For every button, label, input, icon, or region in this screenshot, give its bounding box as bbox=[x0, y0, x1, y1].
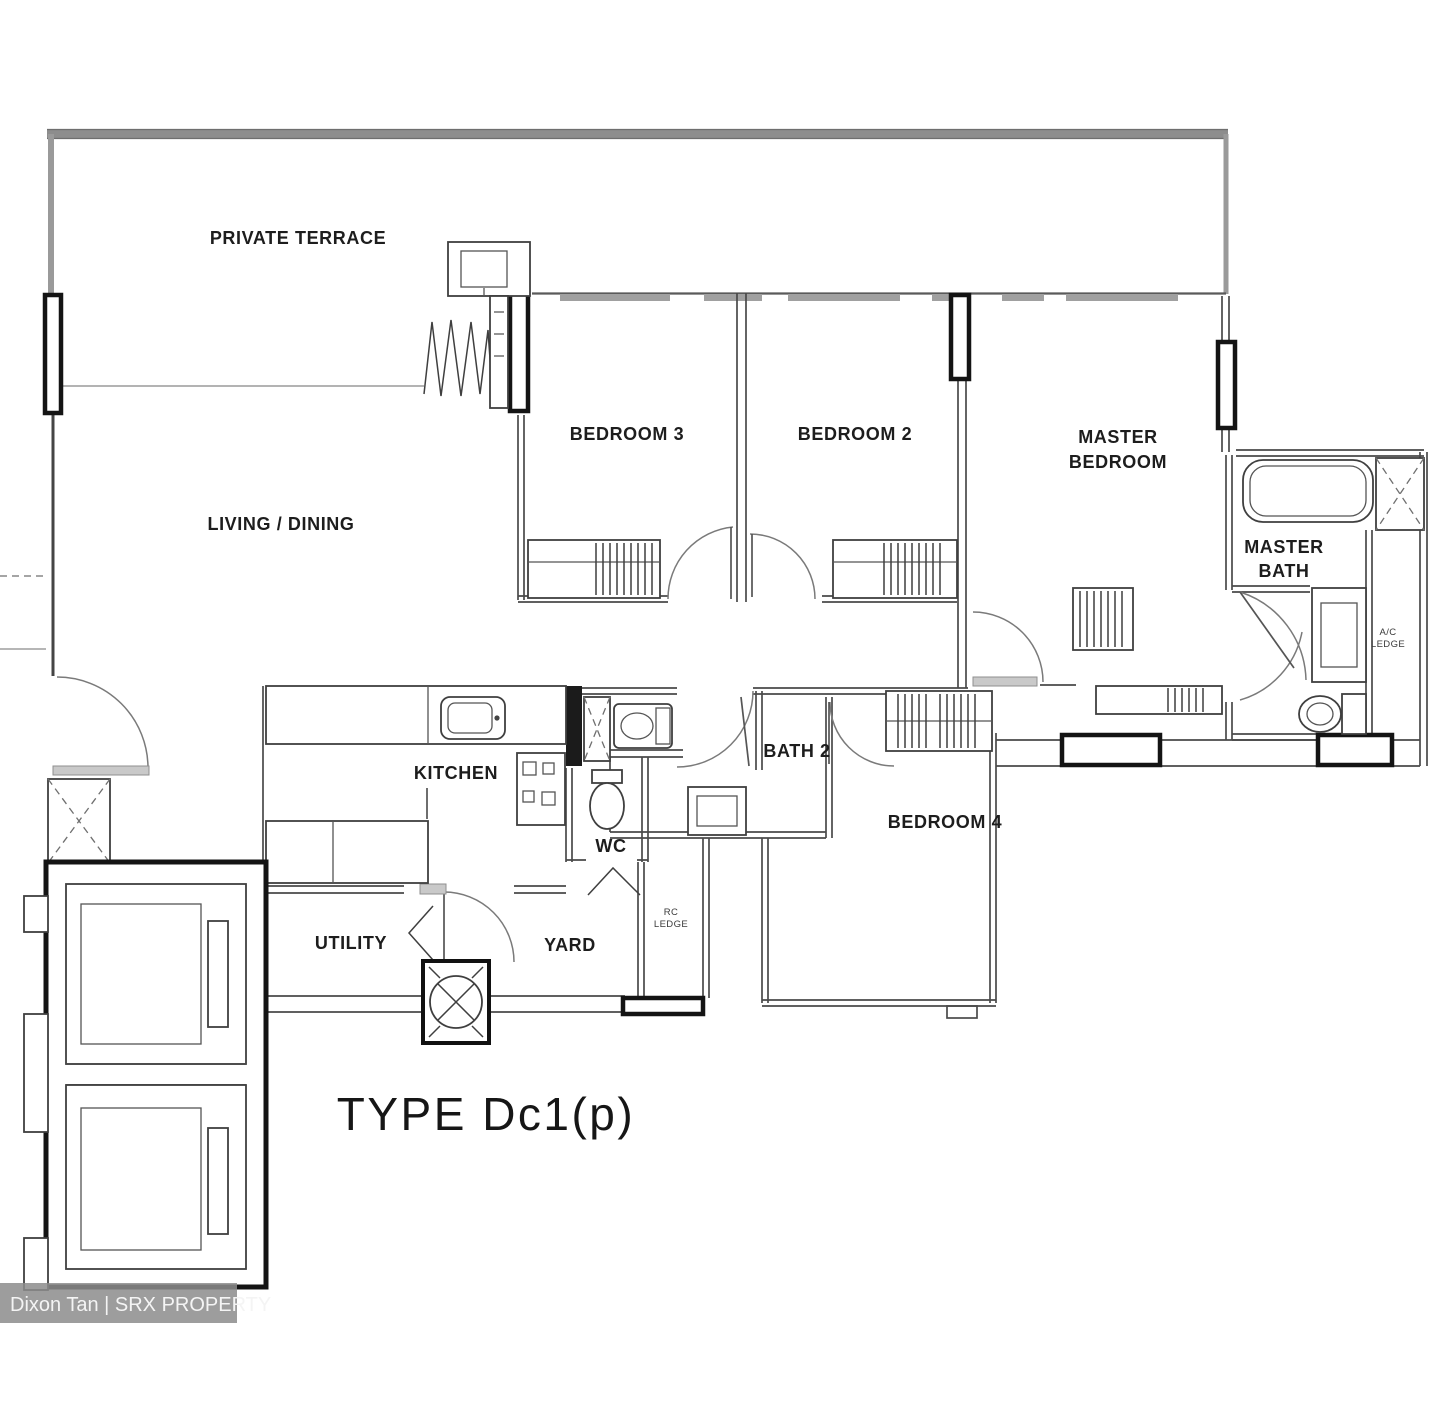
label-bath2: BATH 2 bbox=[763, 741, 830, 761]
entrance-door-arc bbox=[57, 677, 148, 768]
master-bath-toilet bbox=[1299, 696, 1341, 732]
bedroom3-door-arc bbox=[668, 527, 733, 599]
terrace-gate bbox=[424, 296, 508, 408]
watermark: Dixon Tan | SRX PROPERTY bbox=[0, 1283, 271, 1323]
lift-wall-tab-2 bbox=[24, 1014, 48, 1132]
lift-core bbox=[24, 862, 266, 1290]
floorplan-canvas: PRIVATE TERRACE LIVING / DINING BEDROOM … bbox=[0, 0, 1440, 1425]
yard-floor-trap bbox=[423, 961, 489, 1043]
label-yard: YARD bbox=[544, 935, 596, 955]
label-rc-ledge-1: RC bbox=[664, 907, 679, 918]
wc-cistern bbox=[592, 770, 622, 783]
master-bath-vanity bbox=[1312, 588, 1366, 682]
terrace-door-mullion bbox=[510, 293, 528, 411]
kitchen-fixtures bbox=[266, 686, 566, 883]
master-bath-cistern bbox=[1342, 694, 1366, 734]
wing-window-frame-2 bbox=[1318, 735, 1392, 765]
master-bath-shower-diagonal bbox=[1240, 592, 1294, 668]
bath2-toilet bbox=[614, 704, 672, 748]
master-bath-shower-arcs bbox=[1240, 592, 1306, 700]
wc-bifold-door-icon bbox=[588, 868, 640, 895]
bedroom3-wardrobe bbox=[528, 540, 660, 598]
yard-window-frame bbox=[623, 998, 703, 1014]
lift-wall-tab-1 bbox=[24, 896, 48, 932]
master-wardrobe-vertical bbox=[1073, 588, 1133, 650]
master-bedroom-door-leaf bbox=[973, 677, 1037, 686]
label-bedroom4: BEDROOM 4 bbox=[888, 812, 1002, 832]
label-master-bath-2: BATH bbox=[1258, 561, 1309, 581]
kitchen-sink-tap bbox=[494, 715, 499, 720]
bath2-vent-bar bbox=[566, 686, 582, 766]
bedroom4-wing-walls bbox=[762, 733, 1420, 1006]
kitchen-counter-top bbox=[266, 686, 566, 744]
wc-toilet bbox=[590, 783, 624, 829]
gate-spring-icon bbox=[424, 320, 492, 396]
bedroom4-door-arc bbox=[830, 702, 894, 766]
label-master-bedroom-2: BEDROOM bbox=[1069, 452, 1167, 472]
label-rc-ledge-2: LEDGE bbox=[654, 919, 688, 930]
master-wardrobe-vertical-hatch bbox=[1080, 591, 1122, 647]
bath-fixtures bbox=[590, 460, 1373, 835]
label-bedroom3: BEDROOM 3 bbox=[570, 424, 684, 444]
wing-window-frame-1 bbox=[1062, 735, 1160, 765]
master-bedroom-window-frame bbox=[1218, 342, 1235, 428]
label-utility: UTILITY bbox=[315, 933, 387, 953]
label-bedroom2: BEDROOM 2 bbox=[798, 424, 912, 444]
label-living-dining: LIVING / DINING bbox=[207, 514, 354, 534]
label-ac-ledge-2: LEDGE bbox=[1371, 639, 1405, 650]
bedroom2-window-frame bbox=[951, 295, 969, 379]
label-private-terrace: PRIVATE TERRACE bbox=[210, 228, 386, 248]
floorplan-svg: PRIVATE TERRACE LIVING / DINING BEDROOM … bbox=[0, 0, 1440, 1425]
label-master-bedroom-1: MASTER bbox=[1078, 427, 1158, 447]
gate-track bbox=[490, 296, 508, 408]
terrace-walls bbox=[47, 130, 1228, 387]
label-wc: WC bbox=[595, 836, 626, 856]
entrance-threshold bbox=[53, 766, 149, 775]
kitchen-counter-bottom bbox=[266, 821, 428, 883]
kitchen-hob bbox=[517, 753, 565, 825]
yard-door-lintel bbox=[420, 884, 446, 894]
terrace-box-outer bbox=[448, 242, 530, 296]
master-bedroom-door-arc bbox=[973, 612, 1043, 682]
utility-bifold-door-icon bbox=[409, 906, 433, 960]
living-window-frame bbox=[45, 295, 61, 413]
label-kitchen: KITCHEN bbox=[414, 763, 498, 783]
bedroom4-wall-tab bbox=[947, 1006, 977, 1018]
watermark-text: Dixon Tan | SRX PROPERTY bbox=[10, 1294, 271, 1316]
bathtub bbox=[1243, 460, 1373, 522]
interior-walls bbox=[263, 293, 1427, 1018]
bedroom2-door-arc bbox=[750, 534, 815, 599]
plan-title: TYPE Dc1(p) bbox=[337, 1088, 635, 1140]
label-master-bath-1: MASTER bbox=[1244, 537, 1324, 557]
bedroom2-wardrobe bbox=[833, 540, 957, 598]
lift-door-2 bbox=[208, 1128, 228, 1234]
yard-door-arc bbox=[444, 892, 514, 962]
label-ac-ledge-1: A/C bbox=[1379, 627, 1396, 638]
terrace-ac-box bbox=[448, 242, 530, 296]
lift-door-1 bbox=[208, 921, 228, 1027]
bath2-vent-shaft bbox=[584, 697, 610, 761]
lift-wall-tab-3 bbox=[24, 1238, 48, 1290]
